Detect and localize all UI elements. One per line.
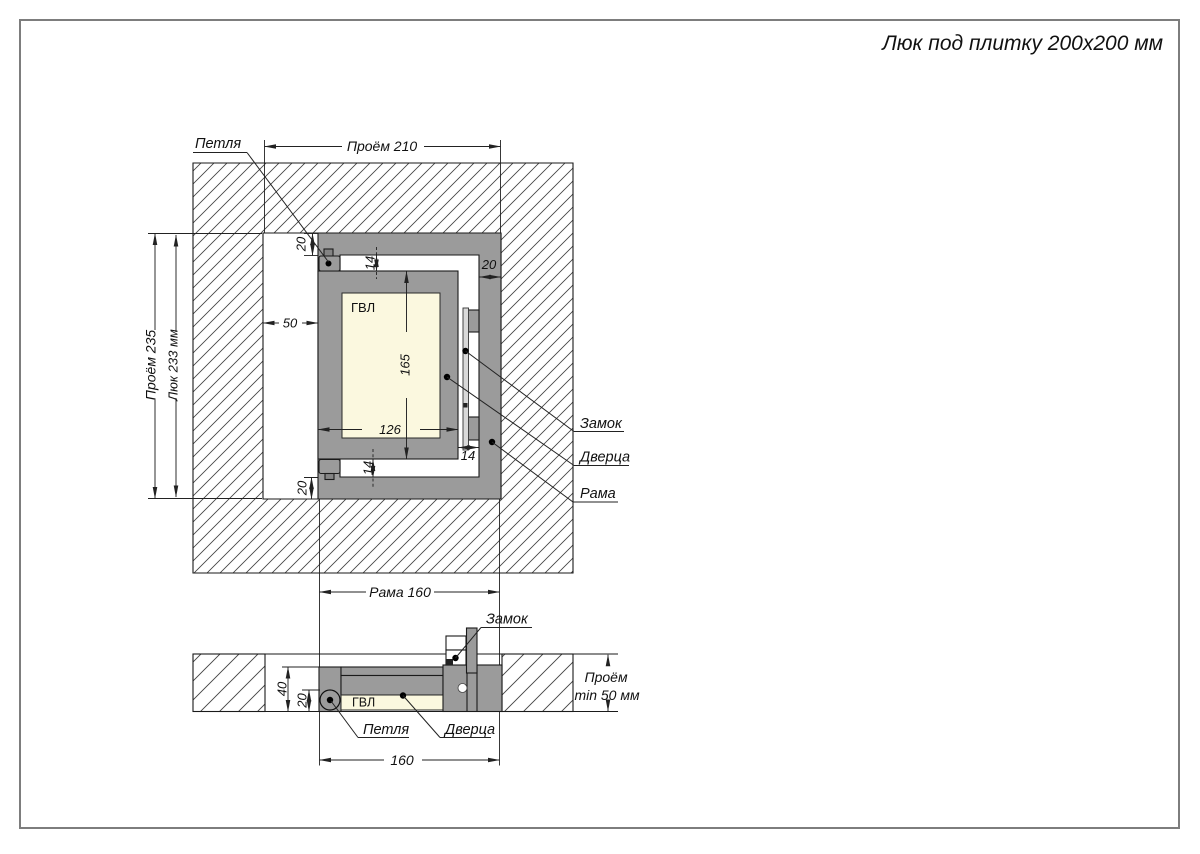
dim-depth-total: 40 <box>275 681 290 696</box>
section-gvl-label: ГВЛ <box>352 696 375 710</box>
dim-profile-bottom: 20 <box>295 480 310 496</box>
drawing-title: Люк под плитку 200x200 мм <box>880 32 1163 55</box>
dim-hatch-height: Люк 233 мм <box>166 329 181 402</box>
label-door: Дверца <box>578 450 630 466</box>
dim-opening-height: Проём 235 <box>143 330 159 401</box>
drawing-page: Люк под плитку 200x200 мм ГВЛ <box>0 0 1200 849</box>
label-frame: Рама <box>580 486 616 502</box>
front-gvl-label: ГВЛ <box>351 300 375 315</box>
dim-section-width: 160 <box>390 752 414 768</box>
lock-keeper-top <box>468 310 479 332</box>
dim-profile-top: 20 <box>294 236 309 252</box>
label-lock: Замок <box>580 416 623 432</box>
dim-gap-bottom: 14 <box>361 461 376 475</box>
dim-opening-depth-2: min 50 мм <box>574 687 640 703</box>
dim-profile-right: 20 <box>481 257 497 272</box>
section-wall-left <box>193 654 265 712</box>
dim-door-width: 126 <box>379 422 401 437</box>
lock-keeper-bottom <box>468 417 479 440</box>
front-lock-strip <box>463 308 469 450</box>
dim-opening-depth-1: Проём <box>584 669 628 685</box>
section-view: ГВЛ 40 20 Про <box>193 612 640 769</box>
dim-left-gap: 50 <box>283 316 298 331</box>
section-wall-right <box>502 654 573 712</box>
dim-gap-top: 14 <box>363 256 378 270</box>
section-screw-notch <box>458 684 467 693</box>
technical-drawing: Люк под плитку 200x200 мм ГВЛ <box>0 0 1200 849</box>
dim-frame-width: Рама 160 <box>369 584 431 600</box>
section-door-top-plate <box>341 667 443 676</box>
section-label-hinge: Петля <box>363 722 409 738</box>
dim-depth-door: 20 <box>295 693 310 709</box>
lock-screw <box>464 403 468 408</box>
dim-opening-width: Проём 210 <box>347 138 418 154</box>
lock-cap <box>446 636 466 650</box>
section-label-lock: Замок <box>486 612 529 628</box>
dim-door-height: 165 <box>398 353 413 375</box>
front-view: ГВЛ <box>143 136 631 667</box>
label-hinge: Петля <box>195 136 241 152</box>
section-door-body <box>341 676 443 696</box>
section-label-door: Дверца <box>443 722 495 738</box>
dim-gap-right: 14 <box>461 448 475 463</box>
